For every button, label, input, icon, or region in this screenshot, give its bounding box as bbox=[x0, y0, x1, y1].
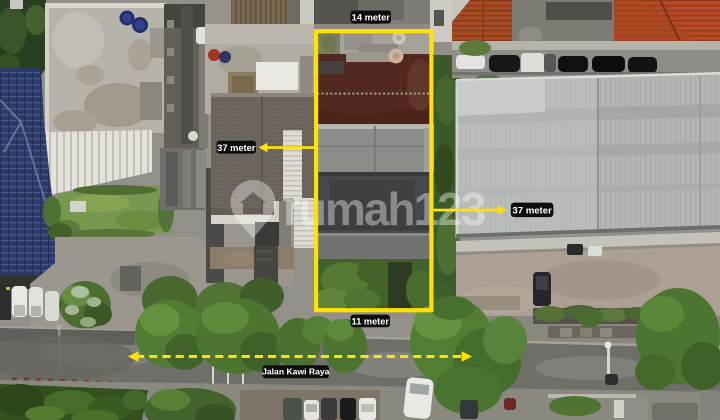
svg-text:37 meter: 37 meter bbox=[512, 206, 552, 217]
svg-text:11 meter: 11 meter bbox=[352, 316, 390, 326]
svg-text:37 meter: 37 meter bbox=[217, 143, 256, 153]
svg-text:Jalan Kawi Raya: Jalan Kawi Raya bbox=[262, 367, 330, 377]
svg-text:14 meter: 14 meter bbox=[352, 13, 391, 23]
